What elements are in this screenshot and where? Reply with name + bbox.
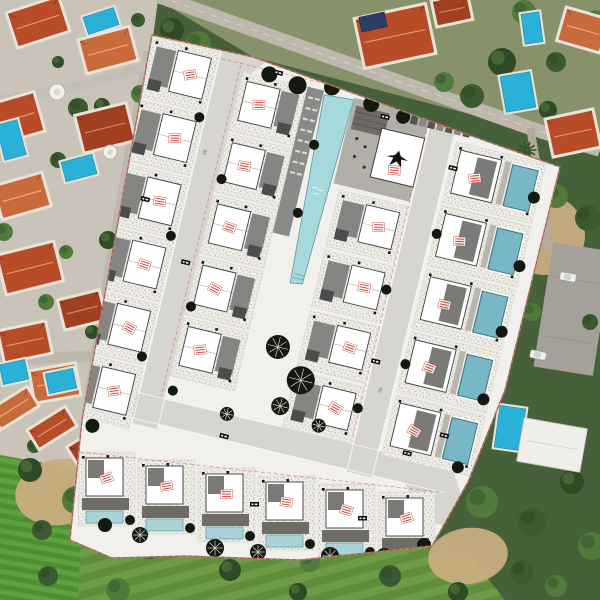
photo-tree-icon xyxy=(546,52,566,72)
private-pool xyxy=(206,527,243,539)
unit-stamp xyxy=(108,386,121,396)
photo-tree-icon xyxy=(560,470,584,494)
unit-stamp xyxy=(238,161,251,172)
photo-tree-icon xyxy=(59,245,73,259)
plan-tree-icon xyxy=(185,523,195,533)
unit-stamp xyxy=(253,100,265,109)
photo-tree-icon xyxy=(460,84,484,108)
photo-tree-icon xyxy=(466,486,498,518)
private-pool xyxy=(266,535,303,547)
water-tank-icon xyxy=(103,145,117,159)
photo-tree-icon xyxy=(518,508,546,536)
unit-stamp xyxy=(388,165,401,175)
photo-tree-icon xyxy=(18,458,42,482)
plan-tree-icon xyxy=(98,518,112,532)
plan-tree-icon xyxy=(132,527,148,543)
photo-tree-icon xyxy=(52,56,64,68)
photo-tree-icon xyxy=(131,13,145,27)
photo-tree-icon xyxy=(434,72,454,92)
unit-stamp xyxy=(453,237,466,247)
photo-tree-icon xyxy=(582,314,598,330)
plan-tree-icon xyxy=(305,539,315,549)
unit-stamp xyxy=(194,345,207,355)
unit-stamp xyxy=(221,490,233,499)
photo-pool xyxy=(518,9,546,47)
unit-stamp xyxy=(372,222,384,232)
plan-tree-icon xyxy=(125,515,135,525)
photo-tree-icon xyxy=(545,575,567,597)
villa-plot-bottom-row xyxy=(198,468,255,542)
scene-canvas: SC SC xyxy=(0,0,600,600)
villa-plot-bottom-row xyxy=(78,452,135,526)
private-pool xyxy=(146,519,183,531)
photo-tree-icon xyxy=(510,560,534,584)
unit-stamp xyxy=(169,134,181,143)
unit-stamp xyxy=(160,481,173,492)
plan-tree-icon xyxy=(250,544,266,560)
unit-stamp xyxy=(468,173,481,183)
villa-plot-bottom-row xyxy=(318,484,375,558)
terrace-deck xyxy=(262,522,309,534)
villa-plot-bottom-row xyxy=(258,476,315,550)
villa-plot-bottom-row xyxy=(138,460,195,534)
water-tank-icon xyxy=(49,84,65,100)
level-label-chip xyxy=(250,502,259,507)
photo-tree-icon xyxy=(38,294,54,310)
photo-tree-icon xyxy=(38,566,58,586)
plan-tree-icon xyxy=(245,531,255,541)
terrace-deck xyxy=(202,514,249,526)
unit-stamp xyxy=(153,196,166,207)
photo-tree-icon xyxy=(488,48,516,76)
terrace-deck xyxy=(82,498,129,510)
unit-stamp xyxy=(183,70,196,81)
terrace-deck xyxy=(142,506,189,518)
plan-tree-icon xyxy=(206,539,224,557)
level-label-chip xyxy=(358,516,367,521)
photo-tree-icon xyxy=(379,565,401,587)
photo-tree-icon xyxy=(32,520,52,540)
photo-tree-icon xyxy=(219,559,241,581)
photo-tree-icon xyxy=(575,205,600,231)
photo-pool xyxy=(497,69,539,115)
aerial-masterplan-screenshot: { "scene": { "title": "Aerial view of vi… xyxy=(0,0,600,600)
unit-stamp xyxy=(280,497,293,508)
terrace-deck xyxy=(322,530,369,542)
